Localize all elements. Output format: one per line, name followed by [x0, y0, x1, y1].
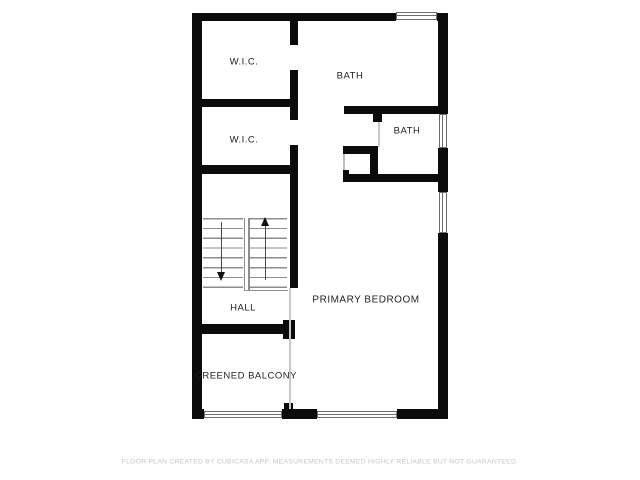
wall-bottom-right [397, 409, 448, 419]
wall-right-middle [438, 148, 448, 192]
window-icon [204, 411, 282, 419]
stairs-down-arrow-shaft [221, 222, 222, 274]
bath-opening-line [378, 122, 380, 147]
room-label-bath-middle: BATH [394, 126, 421, 137]
wall-bottom-left [192, 409, 204, 419]
room-divider-line [289, 288, 291, 409]
window-icon [439, 192, 448, 233]
wall-bath-upper-south [344, 106, 438, 114]
stairs-up-arrow-shaft [265, 224, 266, 280]
room-label-bath-upper: BATH [337, 71, 364, 82]
wall-balcony [202, 324, 283, 334]
wall-closet-partition-a [290, 21, 298, 45]
stairs-up-arrow-icon [261, 217, 269, 226]
stair-rail-left-line [244, 218, 245, 291]
floor-plan: W.I.C. W.I.C. BATH BATH PRIMARY BEDROOM … [0, 0, 640, 480]
stair-rail-right-line [248, 218, 249, 291]
window-icon [396, 12, 437, 20]
wall-right-lower [438, 233, 448, 419]
window-midline [442, 115, 443, 147]
stair-rail-bottom-line [244, 290, 288, 291]
room-label-primary-bedroom: PRIMARY BEDROOM [312, 295, 419, 306]
wall-bath-middle-south [343, 174, 438, 182]
disclaimer-text: FLOOR PLAN CREATED BY CUBICASA APP. MEAS… [122, 459, 519, 466]
window-midline [442, 193, 443, 232]
wall-bath-door-stub [373, 114, 382, 122]
wall-bottom-center [282, 409, 317, 419]
stairs-down-arrow-icon [217, 272, 225, 281]
room-label-balcony: CREENED BALCONY [195, 371, 297, 382]
room-label-wic-lower: W.I.C. [230, 135, 259, 146]
window-icon [439, 114, 448, 148]
wall-hall-top [202, 165, 290, 174]
stair-treads-right [250, 218, 287, 288]
window-midline [318, 414, 396, 415]
wall-left [192, 13, 202, 419]
room-label-wic-upper: W.I.C. [230, 57, 259, 68]
wall-closet-partition-c [290, 145, 298, 288]
wall-right-upper [438, 13, 448, 114]
window-midline [397, 15, 436, 16]
window-midline [205, 414, 281, 415]
wall-wic-divider [202, 99, 290, 107]
room-label-hall: HALL [230, 303, 256, 314]
wall-top-left [192, 13, 396, 21]
window-icon [317, 411, 397, 419]
wall-closet-partition-b [290, 70, 298, 120]
shower-opening-line [343, 154, 345, 170]
